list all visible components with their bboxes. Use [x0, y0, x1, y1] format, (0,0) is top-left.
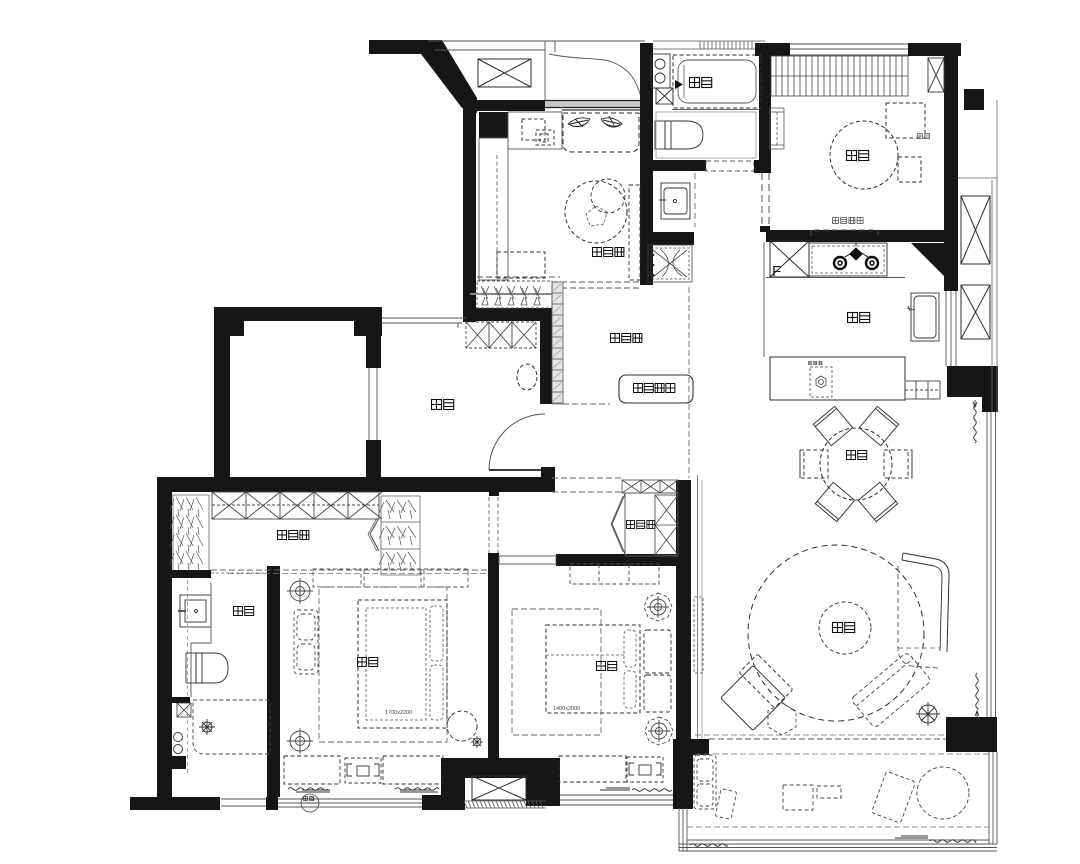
svg-text:1700x2200: 1700x2200 — [385, 710, 412, 716]
svg-text:1400x2000: 1400x2000 — [553, 706, 580, 712]
